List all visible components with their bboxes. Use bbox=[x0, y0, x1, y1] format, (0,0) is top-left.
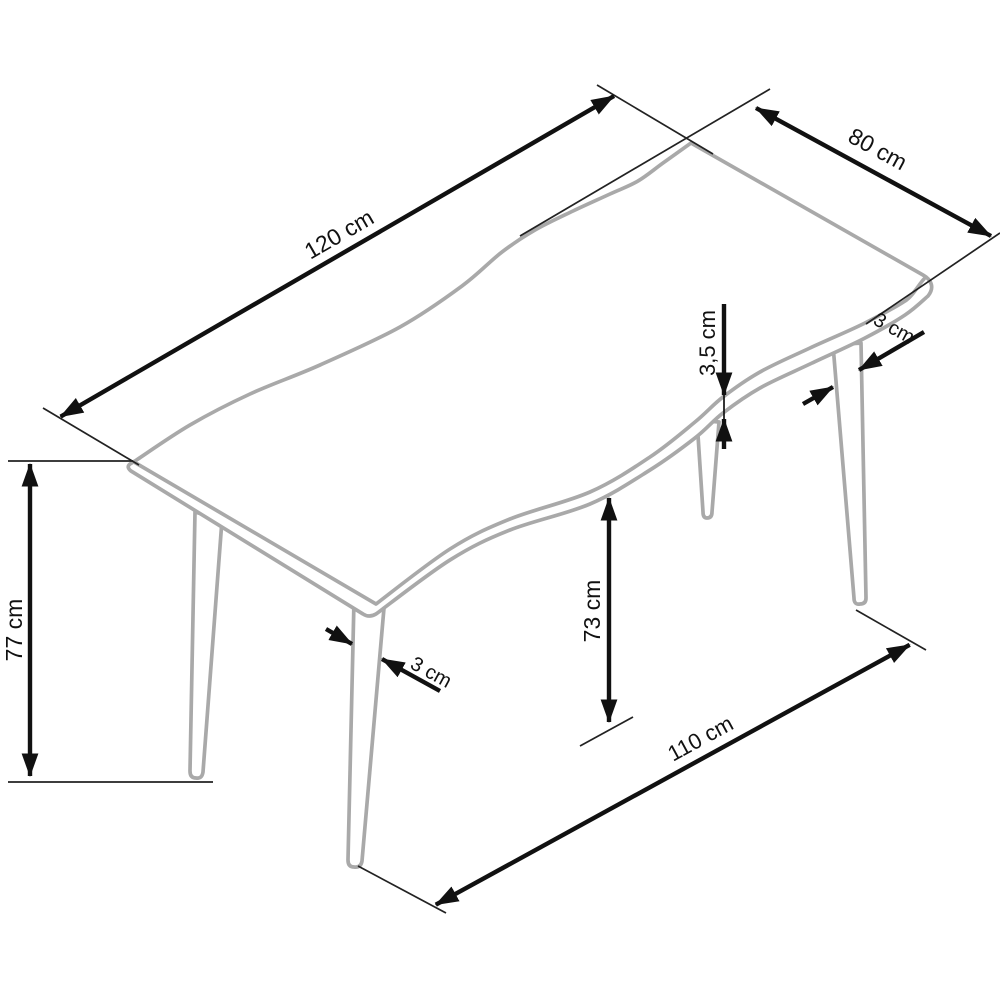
svg-text:77 cm: 77 cm bbox=[1, 599, 27, 662]
svg-text:73 cm: 73 cm bbox=[579, 580, 605, 643]
svg-text:3,5 cm: 3,5 cm bbox=[695, 310, 720, 376]
